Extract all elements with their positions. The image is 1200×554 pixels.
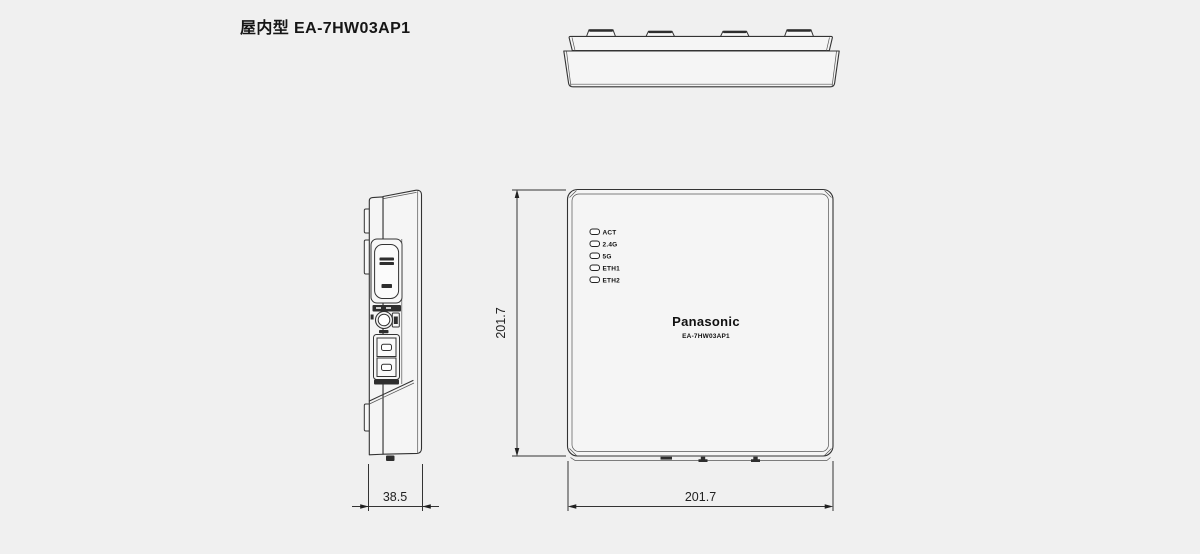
led-eth2-label: ETH2	[603, 277, 621, 284]
led-eth2	[590, 277, 600, 283]
top-view-front-body	[564, 51, 839, 87]
drawing-svg: ACT 2.4G 5G ETH1 ETH2 Panasonic EA-7HW03…	[0, 0, 1200, 554]
led-act	[590, 229, 600, 235]
led-act-label: ACT	[603, 229, 617, 236]
side-button-label-mark	[380, 262, 395, 265]
front-bottom-mark	[661, 457, 673, 460]
led-eth1-label: ETH1	[603, 265, 621, 272]
front-foot	[751, 457, 760, 462]
side-view	[364, 190, 421, 461]
top-view-tabs	[587, 29, 814, 36]
front-foot	[699, 457, 708, 462]
side-button-label-mark	[380, 258, 395, 261]
dimension-width-value: 201.7	[685, 490, 716, 504]
technical-drawing-canvas: 屋内型 EA-7HW03AP1	[0, 0, 1200, 554]
dimension-height-value: 201.7	[494, 307, 508, 338]
model-number: EA-7HW03AP1	[682, 333, 730, 340]
led-24g-label: 2.4G	[603, 241, 618, 248]
top-view	[564, 29, 839, 86]
side-button-label-mark	[382, 284, 393, 288]
front-view: ACT 2.4G 5G ETH1 ETH2 Panasonic EA-7HW03…	[568, 190, 834, 463]
dimension-height: 201.7	[494, 190, 566, 457]
dimension-depth: 38.5	[352, 464, 439, 511]
side-foot	[386, 456, 395, 462]
side-button[interactable]	[375, 245, 399, 299]
brand-logo: Panasonic	[672, 314, 740, 329]
led-eth1	[590, 265, 600, 271]
side-view-button-panel	[371, 239, 402, 303]
side-port-label-mark	[379, 330, 389, 333]
side-ethernet-ports[interactable]	[374, 335, 400, 380]
side-bottom-strip	[374, 380, 399, 385]
led-5g	[590, 253, 600, 259]
dimension-depth-value: 38.5	[383, 490, 407, 504]
led-5g-label: 5G	[603, 253, 612, 260]
top-view-back-strip	[569, 36, 832, 50]
led-24g	[590, 241, 600, 247]
dimension-width: 201.7	[568, 461, 833, 511]
